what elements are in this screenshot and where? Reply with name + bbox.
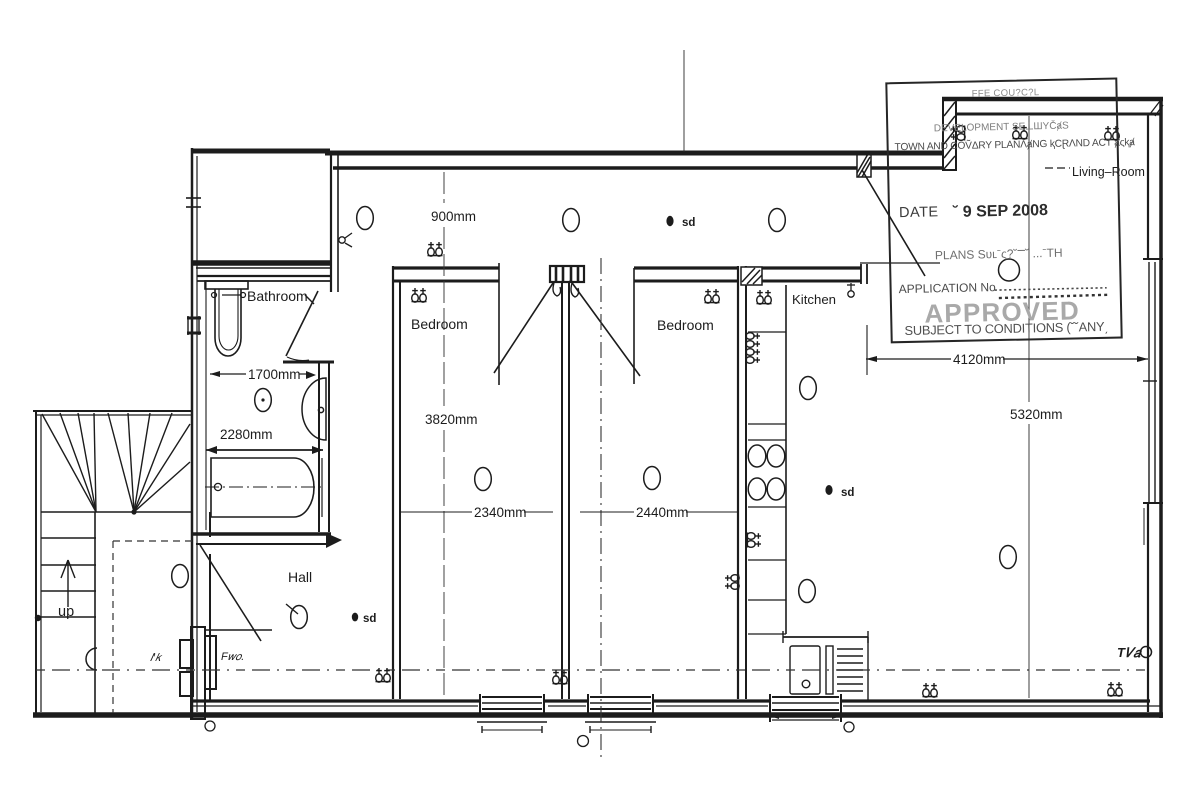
svg-text:FFE COU?C?L: FFE COU?C?L <box>972 87 1040 99</box>
svg-text:Bathroom: Bathroom <box>247 288 308 304</box>
svg-text:Kitchen: Kitchen <box>792 292 836 307</box>
svg-text:Living–Room: Living–Room <box>1072 165 1145 179</box>
svg-text:Bedroom: Bedroom <box>411 316 468 332</box>
svg-text:T𝑉𝑎: T𝑉𝑎 <box>1117 645 1142 660</box>
svg-text:2440mm: 2440mm <box>636 505 689 520</box>
svg-text:4120mm: 4120mm <box>953 352 1006 367</box>
svg-text:sd: sd <box>841 487 854 499</box>
svg-text:˘ 9 SEP 2008: ˘ 9 SEP 2008 <box>952 202 1048 221</box>
svg-text:1700mm: 1700mm <box>248 367 301 382</box>
svg-text:sd: sd <box>363 613 376 625</box>
svg-text:3820mm: 3820mm <box>425 412 478 427</box>
svg-text:2280mm: 2280mm <box>220 427 273 442</box>
svg-text:sd: sd <box>682 217 695 229</box>
svg-text:DATE: DATE <box>899 204 939 221</box>
svg-text:PLANS Sʋʟˉς?˘Ⲻ˘ ...ˉTH: PLANS Sʋʟˉς?˘Ⲻ˘ ...ˉTH <box>935 246 1063 263</box>
svg-text:up: up <box>58 604 74 620</box>
svg-text:2340mm: 2340mm <box>474 505 527 520</box>
svg-text:5320mm: 5320mm <box>1010 407 1063 422</box>
svg-text:Bedroom: Bedroom <box>657 317 714 333</box>
svg-text:APPLICATION No: APPLICATION No <box>898 280 996 296</box>
svg-text:Hall: Hall <box>288 569 312 585</box>
svg-text:F𝑤𝑜.: F𝑤𝑜. <box>221 651 244 663</box>
svg-text:900mm: 900mm <box>431 209 476 224</box>
